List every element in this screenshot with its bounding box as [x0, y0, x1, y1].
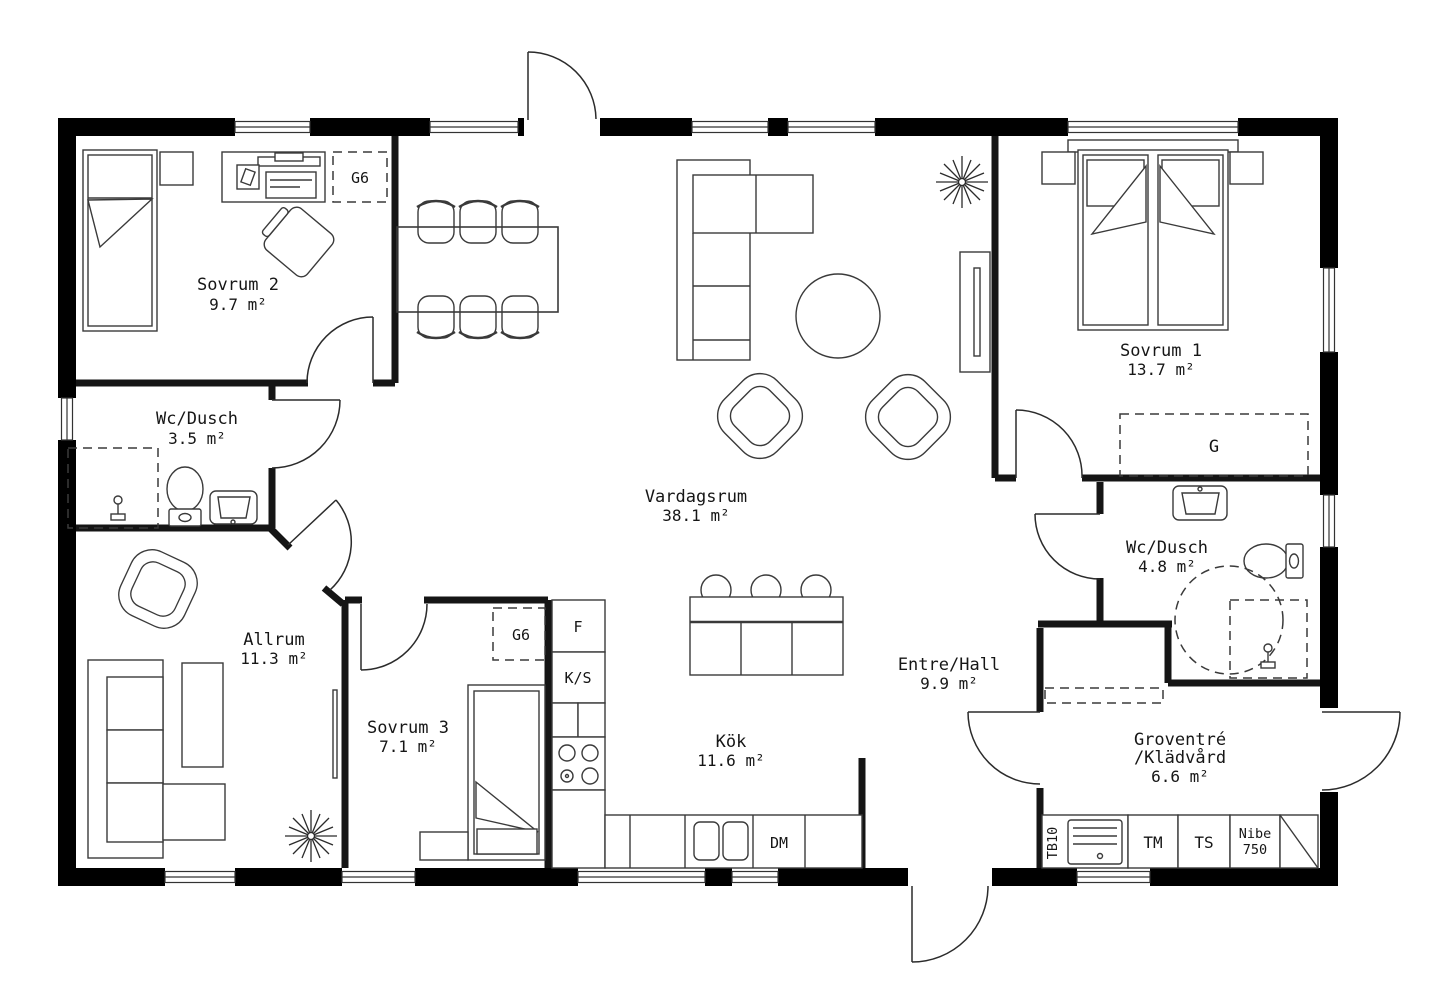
cabinet — [552, 703, 578, 737]
stove — [552, 737, 605, 790]
room-label-groventre-line1: Groventré — [1134, 730, 1226, 750]
sink-basin — [723, 822, 748, 860]
room-area-sovrum2: 9.7 m² — [209, 295, 267, 314]
sink — [210, 491, 257, 524]
room-label-vardagsrum: Vardagsrum — [645, 487, 747, 507]
round-coffee-table — [796, 274, 880, 358]
desk — [222, 152, 325, 202]
corner-unit — [1280, 815, 1318, 868]
nightstand — [420, 832, 468, 860]
drying-cabinet-label: TS — [1194, 833, 1213, 852]
toilet — [1244, 544, 1303, 578]
floor-plan-svg: Sovrum 2 9.7 m² Wc/Dusch 3.5 m² Allrum 1… — [0, 0, 1454, 1006]
room-label-wc-dusch-large: Wc/Dusch — [1126, 538, 1208, 558]
single-bed — [468, 685, 545, 860]
dining-chair — [417, 201, 455, 243]
room-label-groventre-line2: /Klädvård — [1134, 747, 1226, 768]
window — [58, 398, 76, 440]
room-area-vardagsrum: 38.1 m² — [662, 506, 729, 525]
room-area-sovrum3: 7.1 m² — [379, 737, 437, 756]
wardrobe-g6-label: G6 — [351, 169, 369, 187]
window — [430, 118, 518, 136]
room-area-entre-hall: 9.9 m² — [920, 674, 978, 693]
dining-chair — [459, 296, 497, 338]
room-label-sovrum3: Sovrum 3 — [367, 718, 449, 738]
room-label-sovrum2: Sovrum 2 — [197, 275, 279, 295]
window — [1077, 868, 1150, 886]
dining-chair — [501, 201, 539, 243]
window — [342, 868, 415, 886]
heat-pump-label-line2: 750 — [1243, 842, 1267, 858]
sink-basin — [694, 822, 719, 860]
window — [692, 118, 768, 136]
nightstand — [1042, 152, 1075, 184]
dishwasher-label: DM — [770, 834, 788, 852]
room-area-wc-dusch-small: 3.5 m² — [168, 429, 226, 448]
nightstand — [160, 152, 193, 185]
room-label-kok: Kök — [716, 732, 747, 752]
heat-pump-label-line1: Nibe — [1239, 826, 1272, 842]
cabinet — [552, 790, 605, 868]
dining-chair — [417, 296, 455, 338]
dining-chair — [459, 201, 497, 243]
window — [235, 118, 310, 136]
side-table — [182, 663, 223, 767]
double-bed — [1078, 150, 1228, 330]
sideboard — [960, 252, 990, 372]
dining-chair — [501, 296, 539, 338]
wall-tv — [333, 690, 337, 778]
room-area-groventre: 6.6 m² — [1151, 767, 1209, 786]
washing-machine-label: TM — [1143, 833, 1162, 852]
room-label-allrum: Allrum — [243, 630, 304, 650]
room-label-sovrum1: Sovrum 1 — [1120, 341, 1202, 361]
room-area-allrum: 11.3 m² — [240, 649, 307, 668]
pantry-label: K/S — [564, 669, 591, 687]
room-area-sovrum1: 13.7 m² — [1127, 360, 1194, 379]
wardrobe-g-label: G — [1209, 437, 1219, 457]
sink — [1173, 486, 1227, 520]
fridge-label: F — [573, 618, 582, 636]
kitchen-island — [690, 575, 843, 675]
room-label-wc-dusch-small: Wc/Dusch — [156, 409, 238, 429]
window — [732, 868, 778, 886]
nightstand — [1230, 152, 1263, 184]
window — [1320, 268, 1338, 352]
single-bed — [83, 150, 157, 331]
window — [788, 118, 875, 136]
room-label-entre-hall: Entre/Hall — [898, 655, 1000, 675]
utility-sink-label: TB10 — [1045, 827, 1061, 860]
window — [1068, 118, 1238, 136]
cabinet — [578, 703, 605, 737]
window — [1320, 495, 1338, 547]
toilet — [167, 467, 203, 526]
window — [165, 868, 235, 886]
kitchen-counter — [605, 815, 862, 868]
wardrobe-g6-label: G6 — [512, 626, 530, 644]
room-area-wc-dusch-large: 4.8 m² — [1138, 557, 1196, 576]
floor-plan-canvas: Sovrum 2 9.7 m² Wc/Dusch 3.5 m² Allrum 1… — [0, 0, 1454, 1006]
room-area-kok: 11.6 m² — [697, 751, 764, 770]
window — [578, 868, 705, 886]
